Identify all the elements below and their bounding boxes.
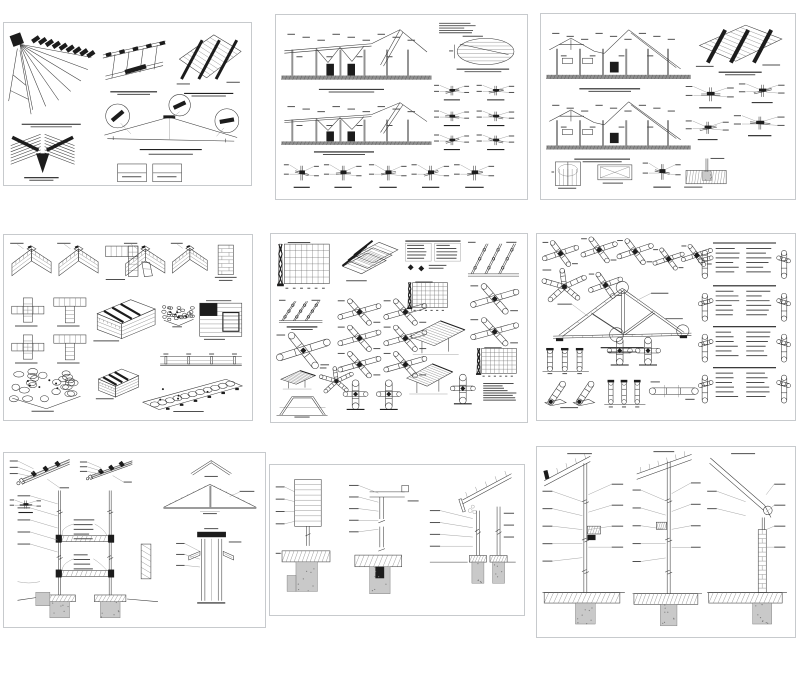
figure-caption: [287, 327, 318, 330]
sheet-8-wall-base-and-foundation-details: [269, 464, 525, 616]
sheet-3-asymmetric-roof-sections-and-details: [540, 13, 796, 200]
figure-bambooX: [588, 272, 622, 298]
sheet-6-drawing-area: [537, 234, 795, 420]
figure-brickplan-t: [54, 335, 86, 363]
figure-tallsec-b: [633, 451, 702, 625]
figure-textblock: [439, 23, 476, 32]
figure-section-a: [281, 30, 431, 80]
figure-brickisowall: [93, 300, 155, 341]
figure-layeredroof: [342, 240, 398, 281]
figure-vertjoint: [450, 374, 475, 404]
figure-texttable: [405, 241, 460, 271]
figure-smalldetail: [739, 84, 785, 103]
figure-brickcol: [215, 245, 237, 280]
sheet-5-bamboo-lashing-and-roof-details: [270, 233, 528, 423]
figure-section-b: [546, 30, 690, 79]
figure-caption: [579, 89, 640, 92]
figure-gable: [163, 484, 256, 513]
figure-brickplan-l: [106, 246, 138, 279]
sheet-4-masonry-bond-details: [3, 234, 253, 421]
figure-vertjoint: [607, 337, 632, 365]
figure-bambooX: [384, 325, 427, 351]
figure-smalldetail: [284, 165, 319, 188]
sheet-1-drawing-area: [4, 23, 251, 185]
figure-smalldetail: [369, 165, 407, 188]
figure-caption: [719, 72, 762, 75]
figure-tallsec-a: [543, 453, 625, 624]
figure-smalldetail: [434, 85, 469, 100]
figure-thatch: [281, 371, 316, 389]
figure-section-a: [281, 103, 431, 145]
figure-brickelev: [200, 301, 242, 340]
sheet-2-drawing-area: [276, 15, 527, 199]
figure-smalldetail: [434, 111, 469, 126]
figure-brickisowall: [96, 369, 139, 399]
sheet-9-full-height-wall-sections: [536, 446, 796, 638]
figure-brickiso-t: [124, 243, 165, 276]
figure-btext: [698, 368, 790, 403]
figure-leanpost: [545, 381, 595, 407]
figure-stoneiso: [9, 368, 80, 411]
figure-caption: [319, 89, 384, 92]
figure-brickplan-t: [54, 298, 86, 326]
figure-thatch: [410, 321, 465, 354]
figure-mesh: [277, 243, 329, 289]
figure-hcyl: [649, 382, 698, 399]
figure-mesh: [476, 348, 516, 376]
figure-brickiso-l: [57, 243, 98, 275]
figure-btext: [698, 243, 790, 278]
figure-eavecol: [430, 471, 516, 583]
figure-bambooX: [653, 248, 684, 270]
figure-siding: [276, 480, 330, 592]
figure-brickplan-x: [12, 335, 44, 363]
figure-eaveiso: [80, 461, 132, 482]
sheet-8-drawing-area: [270, 465, 524, 615]
figure-trapframe: [277, 397, 328, 417]
figure-isocorner: [11, 134, 75, 173]
figure-vertjoint: [635, 337, 660, 365]
sheet-7-drawing-area: [4, 453, 265, 627]
figure-smalldetail: [454, 165, 494, 188]
figure-smalldetail: [477, 135, 515, 150]
figure-bambooX: [338, 351, 381, 377]
figure-vertjoint: [376, 380, 401, 410]
figure-brickplan-x: [12, 298, 44, 326]
figure-btext: [698, 327, 790, 362]
figure-vertjoint: [343, 380, 368, 410]
figure-bambooX: [581, 237, 617, 263]
figure-opening-door: [551, 162, 580, 188]
figure-smalldetail: [734, 116, 785, 136]
sheet-9-drawing-area: [537, 447, 795, 637]
figure-star: [542, 268, 587, 302]
sheet-4-drawing-area: [4, 235, 252, 420]
figure-smalldetail: [411, 165, 449, 188]
figure-stoneiso: [162, 306, 195, 327]
figure-lbeam: [349, 485, 419, 593]
figure-eaveiso: [10, 459, 70, 487]
figure-caption: [110, 92, 157, 95]
figure-chimney: [176, 529, 241, 603]
figure-smalldetail: [10, 500, 41, 513]
sheet-3-drawing-area: [541, 14, 795, 199]
figure-btext: [698, 286, 790, 321]
figure-mesh: [407, 282, 447, 310]
figure-stonewalliso: [143, 379, 242, 411]
sheet-1-roof-framing-isometrics: [3, 22, 252, 186]
sheet-2-building-elevations-and-details: [275, 14, 528, 200]
figure-brickiso-l: [171, 243, 207, 273]
figure-legend2: [118, 164, 182, 182]
sheet-5-drawing-area: [271, 234, 527, 422]
cad-drawing-collage: [0, 0, 800, 691]
figure-tallsec-c: [707, 454, 787, 624]
figure-ridge: [191, 461, 232, 477]
figure-battens: [279, 300, 322, 322]
figure-smalldetail: [477, 85, 515, 100]
figure-smalldetail: [434, 135, 469, 150]
figure-bambooX: [276, 332, 330, 368]
figure-foundsec: [684, 158, 726, 187]
figure-opening-window: [598, 165, 632, 183]
figure-smalldetail: [686, 121, 729, 140]
figure-bambooX: [470, 284, 518, 315]
figure-smalldetail: [686, 87, 734, 108]
figure-bambooX: [542, 241, 578, 267]
figure-brickiso-l: [10, 243, 51, 275]
figure-section-b: [546, 102, 690, 150]
figure-twostory: [18, 490, 158, 617]
figure-ellipseplan: [449, 36, 514, 64]
figure-bambooX: [338, 299, 381, 325]
figure-caption: [457, 69, 510, 72]
figure-posts3: [543, 348, 589, 374]
figure-isopanel: [696, 25, 782, 66]
figure-trusscall: [104, 94, 238, 154]
figure-smalldetail: [477, 111, 515, 126]
figure-wallstrip: [160, 354, 242, 366]
figure-battens: [468, 242, 519, 276]
figure-isobeams: [103, 41, 166, 80]
sheet-6-bamboo-truss-and-joint-details: [536, 233, 796, 421]
figure-bambooX: [617, 239, 653, 265]
figure-thatch: [407, 364, 453, 394]
figure-textblock: [483, 384, 516, 401]
figure-caption: [22, 124, 81, 127]
figure-bambooX: [470, 318, 518, 346]
figure-fan: [9, 32, 96, 114]
figure-star: [319, 367, 353, 393]
figure-posts3: [604, 380, 645, 407]
figure-caption: [574, 159, 630, 162]
figure-smalldetail: [643, 163, 681, 187]
figure-caption: [184, 93, 233, 96]
figure-caption: [314, 152, 374, 155]
figure-bambooX: [384, 299, 427, 325]
figure-smalldetail: [324, 165, 362, 188]
figure-isopanel: [177, 35, 241, 84]
figure-caption: [24, 178, 58, 181]
sheet-7-two-story-wall-sections: [3, 452, 266, 628]
figure-bambooX: [338, 325, 381, 351]
